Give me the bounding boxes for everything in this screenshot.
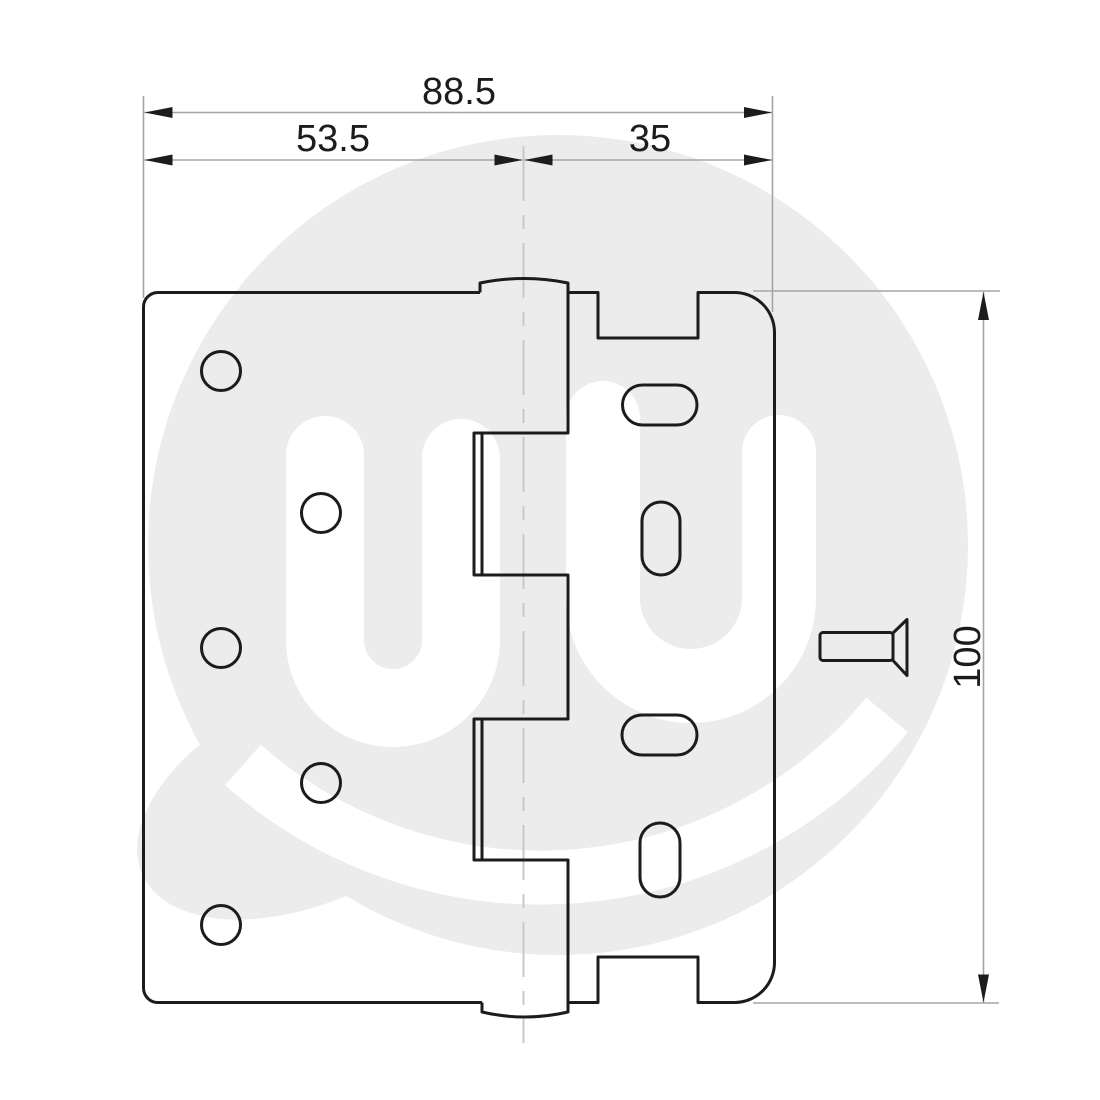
arrow-up <box>978 292 989 320</box>
arrow-right <box>744 107 772 118</box>
watermark-logo <box>98 135 968 970</box>
dim-overall-width-label: 88.5 <box>422 71 496 113</box>
dim-left-leaf-width-label: 53.5 <box>296 118 370 160</box>
hinge-technical-drawing: 88.5 53.5 35 100 <box>0 0 1100 1100</box>
arrow-left <box>145 155 173 166</box>
dim-right-leaf-width-label: 35 <box>629 118 671 160</box>
arrow-down <box>978 975 989 1003</box>
dim-height-label: 100 <box>947 625 989 688</box>
technical-drawing-page: 88.5 53.5 35 100 <box>0 0 1100 1100</box>
arrow-left <box>145 107 173 118</box>
arrow-right <box>744 155 772 166</box>
knuckle-bottom-cap <box>482 1003 568 1018</box>
